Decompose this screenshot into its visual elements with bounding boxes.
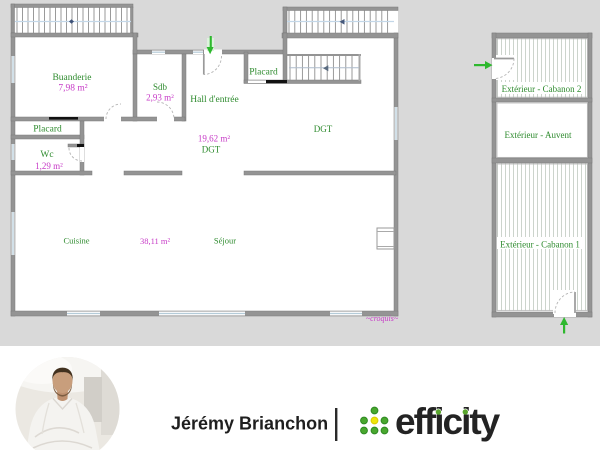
svg-text:Extérieur - Cabanon 1: Extérieur - Cabanon 1 [500, 240, 580, 250]
svg-text:1,29 m²: 1,29 m² [35, 161, 63, 171]
svg-text:Extérieur - Auvent: Extérieur - Auvent [505, 130, 572, 140]
svg-text:Cuisine: Cuisine [64, 236, 90, 246]
svg-text:Extérieur - Cabanon 2: Extérieur - Cabanon 2 [502, 84, 582, 94]
svg-text:Séjour: Séjour [214, 236, 236, 246]
svg-text:Sdb: Sdb [153, 82, 168, 92]
svg-text:7,98 m²: 7,98 m² [58, 84, 87, 94]
svg-text:DGT: DGT [202, 145, 221, 155]
svg-text:Placard: Placard [33, 125, 62, 135]
svg-text:Placard: Placard [249, 68, 278, 78]
svg-text:DGT: DGT [314, 124, 333, 134]
svg-text:Wc: Wc [40, 150, 53, 160]
svg-text:19,62 m²: 19,62 m² [198, 134, 231, 144]
svg-text:38,11 m²: 38,11 m² [140, 236, 171, 246]
svg-text:~croquis~: ~croquis~ [366, 314, 399, 323]
svg-text:Hall d'entrée: Hall d'entrée [190, 95, 238, 105]
svg-text:Jérémy Brianchon: Jérémy Brianchon [171, 414, 328, 434]
svg-text:Buanderie: Buanderie [52, 73, 91, 83]
svg-text:2,93 m²: 2,93 m² [146, 93, 174, 103]
svg-text:efficity: efficity [395, 401, 501, 442]
